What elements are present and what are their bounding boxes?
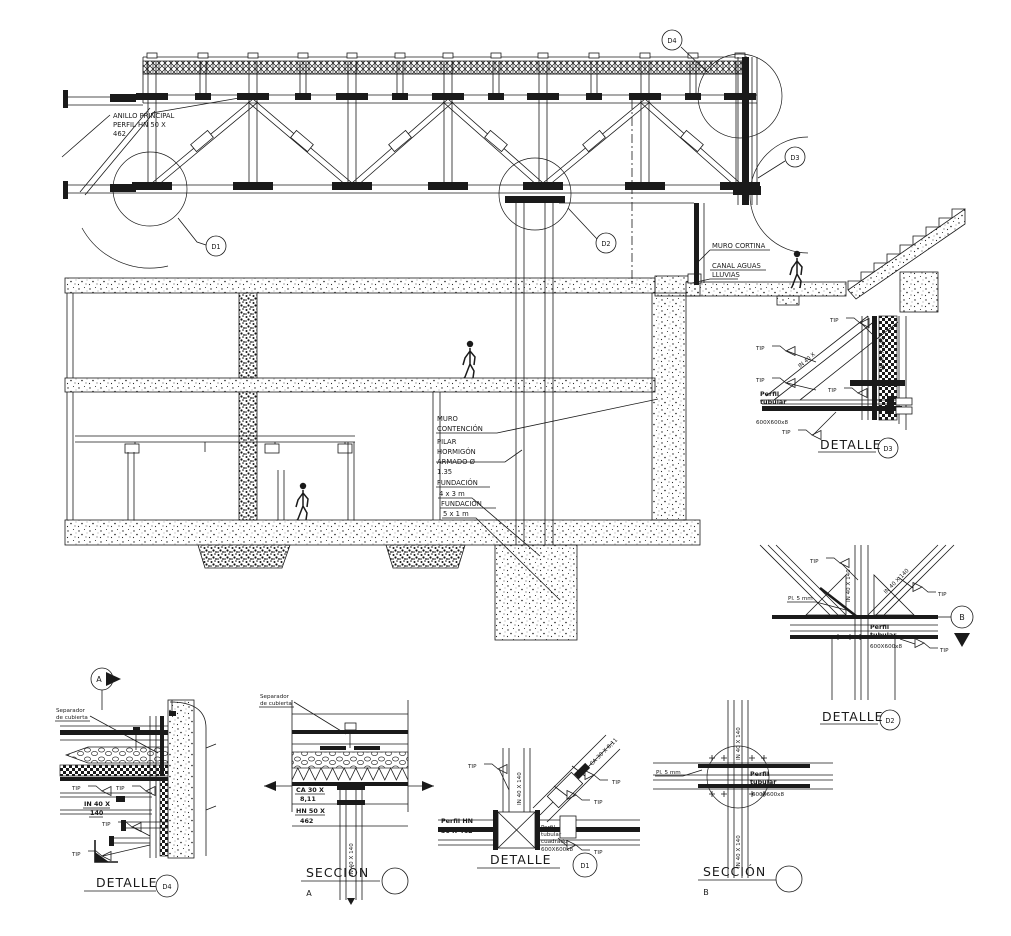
person-figure [296, 483, 308, 520]
curtain-wall [694, 203, 704, 285]
perfil-label: Perfil [870, 623, 889, 631]
marker-d2: D2 [601, 240, 610, 248]
section-a: Separador de cubierta CA 30 X 8,11 HN 50… [259, 694, 434, 905]
pile-foundation [495, 545, 577, 640]
label-muro-cortina: MURO CORTINA [712, 242, 766, 250]
title-marker-d2: D2 [885, 717, 894, 725]
tubular-label: tubular [760, 398, 787, 406]
retaining-wall [652, 293, 686, 520]
plate-label: Pl. 5 mm [788, 596, 813, 602]
member-label: IN 40 X [84, 800, 110, 808]
tubular-1: Perfil [541, 825, 555, 831]
marker-d4: D4 [667, 37, 676, 45]
base-slab [65, 520, 700, 545]
label-anillo-3: 462 [113, 130, 126, 138]
tip-label: TIP [71, 786, 81, 792]
plate-label: Pl. 5 mm [656, 770, 681, 776]
tubular-label: tubular [870, 631, 897, 639]
central-pillar [505, 196, 565, 545]
label-fund2-2: 5 x 1 m [443, 510, 469, 518]
roof-deck [143, 61, 747, 74]
perfil-label: Perfil [760, 390, 779, 398]
section-letter-a: A [306, 889, 312, 898]
truss-diagonals [152, 99, 740, 186]
title-marker-d1: D1 [580, 862, 589, 870]
label-pilar-2: HORMIGÓN [437, 447, 476, 456]
detail-d3: TIP TIP TIP TIP TIP Perfil tubular 600X6… [755, 316, 912, 458]
interior-column [239, 293, 257, 378]
label-muro-2: CONTENCIÓN [437, 424, 483, 433]
member-label: IN 40 X 140 [517, 772, 523, 805]
tip-label: TIP [809, 559, 819, 565]
hn50-label-2: 462 [300, 817, 313, 825]
label-fund2-1: FUNDACIÓN [441, 499, 482, 508]
title-detalle-d4: DETALLE [96, 875, 158, 890]
detail-d1: IN 40 X 140 TIP CA 30 X 8,11 TIP TIP TIP… [438, 735, 640, 877]
tip-label: TIP [593, 800, 603, 806]
tip-label: TIP [755, 378, 765, 384]
member-label: CA 30 X 8,11 [589, 737, 619, 767]
section-ref-a: A [96, 675, 102, 684]
title-detalle-d3: DETALLE [820, 437, 882, 452]
truss-verticals [148, 61, 744, 185]
tubular-2: tubular [541, 832, 562, 838]
interior-column [239, 392, 257, 520]
label-pilar-1: PILAR [437, 438, 457, 446]
tip-label: TIP [467, 764, 477, 770]
person-figure [463, 341, 475, 378]
tip-label: TIP [611, 780, 621, 786]
truss-node-pads [136, 53, 756, 100]
perfil-hn-1: Perfil HN [441, 817, 473, 825]
size-label: 600X600x8 [752, 792, 784, 798]
member-label: IN 40 X 140 [736, 835, 742, 868]
label-pilar-4: 1.35 [437, 468, 452, 476]
tip-label: TIP [593, 850, 603, 856]
separador-2: de cubierta [260, 701, 292, 707]
tip-label: TIP [101, 822, 111, 828]
tip-label: TIP [939, 648, 949, 654]
roof-truss [63, 53, 761, 288]
member-label: IN 40 X 140 [736, 727, 742, 760]
member-label: IN 40 X 140 [883, 568, 911, 596]
section-b: IN 40 X 140 IN 40 X 140 Pl. 5 mm Perfil … [653, 700, 833, 897]
footing-left [198, 545, 290, 568]
tip-label: TIP [829, 318, 839, 324]
label-fund1-1: FUNDACIÓN [437, 478, 478, 487]
label-canal-1: CANAL AGUAS [712, 262, 761, 270]
title-circle-sb [776, 866, 802, 892]
bottom-gussets [132, 182, 760, 190]
member-label: IN 40 X [797, 352, 817, 370]
label-anillo-1: ANILLO PRINCIPAL [113, 112, 175, 120]
stairs [848, 209, 965, 312]
perfil-hn-2: 50 X 462 [441, 827, 473, 835]
tip-label: TIP [827, 388, 837, 394]
label-fund1-2: 4 x 3 m [439, 490, 465, 498]
ca30-label-2: 8,11 [300, 795, 316, 803]
tip-label: TIP [781, 430, 791, 436]
tubular-3: cuadrado [541, 839, 568, 845]
mid-slab [65, 378, 655, 392]
title-detalle-d1: DETALLE [490, 852, 552, 867]
label-canal-2: LLUVIAS [712, 271, 740, 279]
label-anillo-2: PERFIL HN 50 X [113, 121, 166, 129]
detail-d4: A Separador de cubierta IN 40 X 140 TIP … [55, 668, 216, 897]
title-seccion-b: SECCIÓN [703, 864, 766, 879]
ca30-label-1: CA 30 X [296, 786, 324, 794]
upper-slab [65, 278, 655, 293]
section-letter-b: B [703, 888, 709, 897]
plaza-slab [686, 282, 846, 296]
tip-label: TIP [71, 852, 81, 858]
size-label: 600X600x8 [756, 420, 788, 426]
title-seccion-a: SECCIÓN [306, 865, 369, 880]
footing-mid [386, 545, 465, 568]
title-circle-sa [382, 868, 408, 894]
separador-1: Separador [260, 694, 290, 700]
tip-label: TIP [755, 346, 765, 352]
cad-sheet: D1 D2 D3 D4 ANILLO PRINCIPAL PERFIL HN 5… [0, 0, 1011, 936]
title-marker-d4: D4 [162, 883, 171, 891]
section-ref-b: B [959, 613, 965, 622]
perfil-label: Perfil [750, 770, 769, 778]
separador-2: de cubierta [56, 715, 88, 721]
basement-interior [75, 436, 355, 520]
title-detalle-d2: DETALLE [822, 709, 884, 724]
separador-1: Separador [56, 708, 86, 714]
label-muro-1: MURO [437, 415, 458, 423]
tip-label: TIP [115, 786, 125, 792]
member-label: IN 40 X 140 [846, 569, 852, 602]
marker-d3: D3 [790, 154, 799, 162]
drawing-canvas: D1 D2 D3 D4 ANILLO PRINCIPAL PERFIL HN 5… [0, 0, 1011, 936]
hn50-label-1: HN 50 X [296, 807, 325, 815]
marker-d1: D1 [211, 243, 220, 251]
tip-label: TIP [937, 592, 947, 598]
size-label: 600X600x8 [870, 644, 902, 650]
title-marker-d3: D3 [883, 445, 892, 453]
member-label: IN 40 X 140 [880, 337, 886, 370]
tubular-label: tubular [750, 778, 777, 786]
detail-d2: TIP TIP TIP Pl. 5 mm IN 40 X 140 IN 40 X… [760, 545, 973, 730]
member-label: 140 [90, 809, 104, 817]
